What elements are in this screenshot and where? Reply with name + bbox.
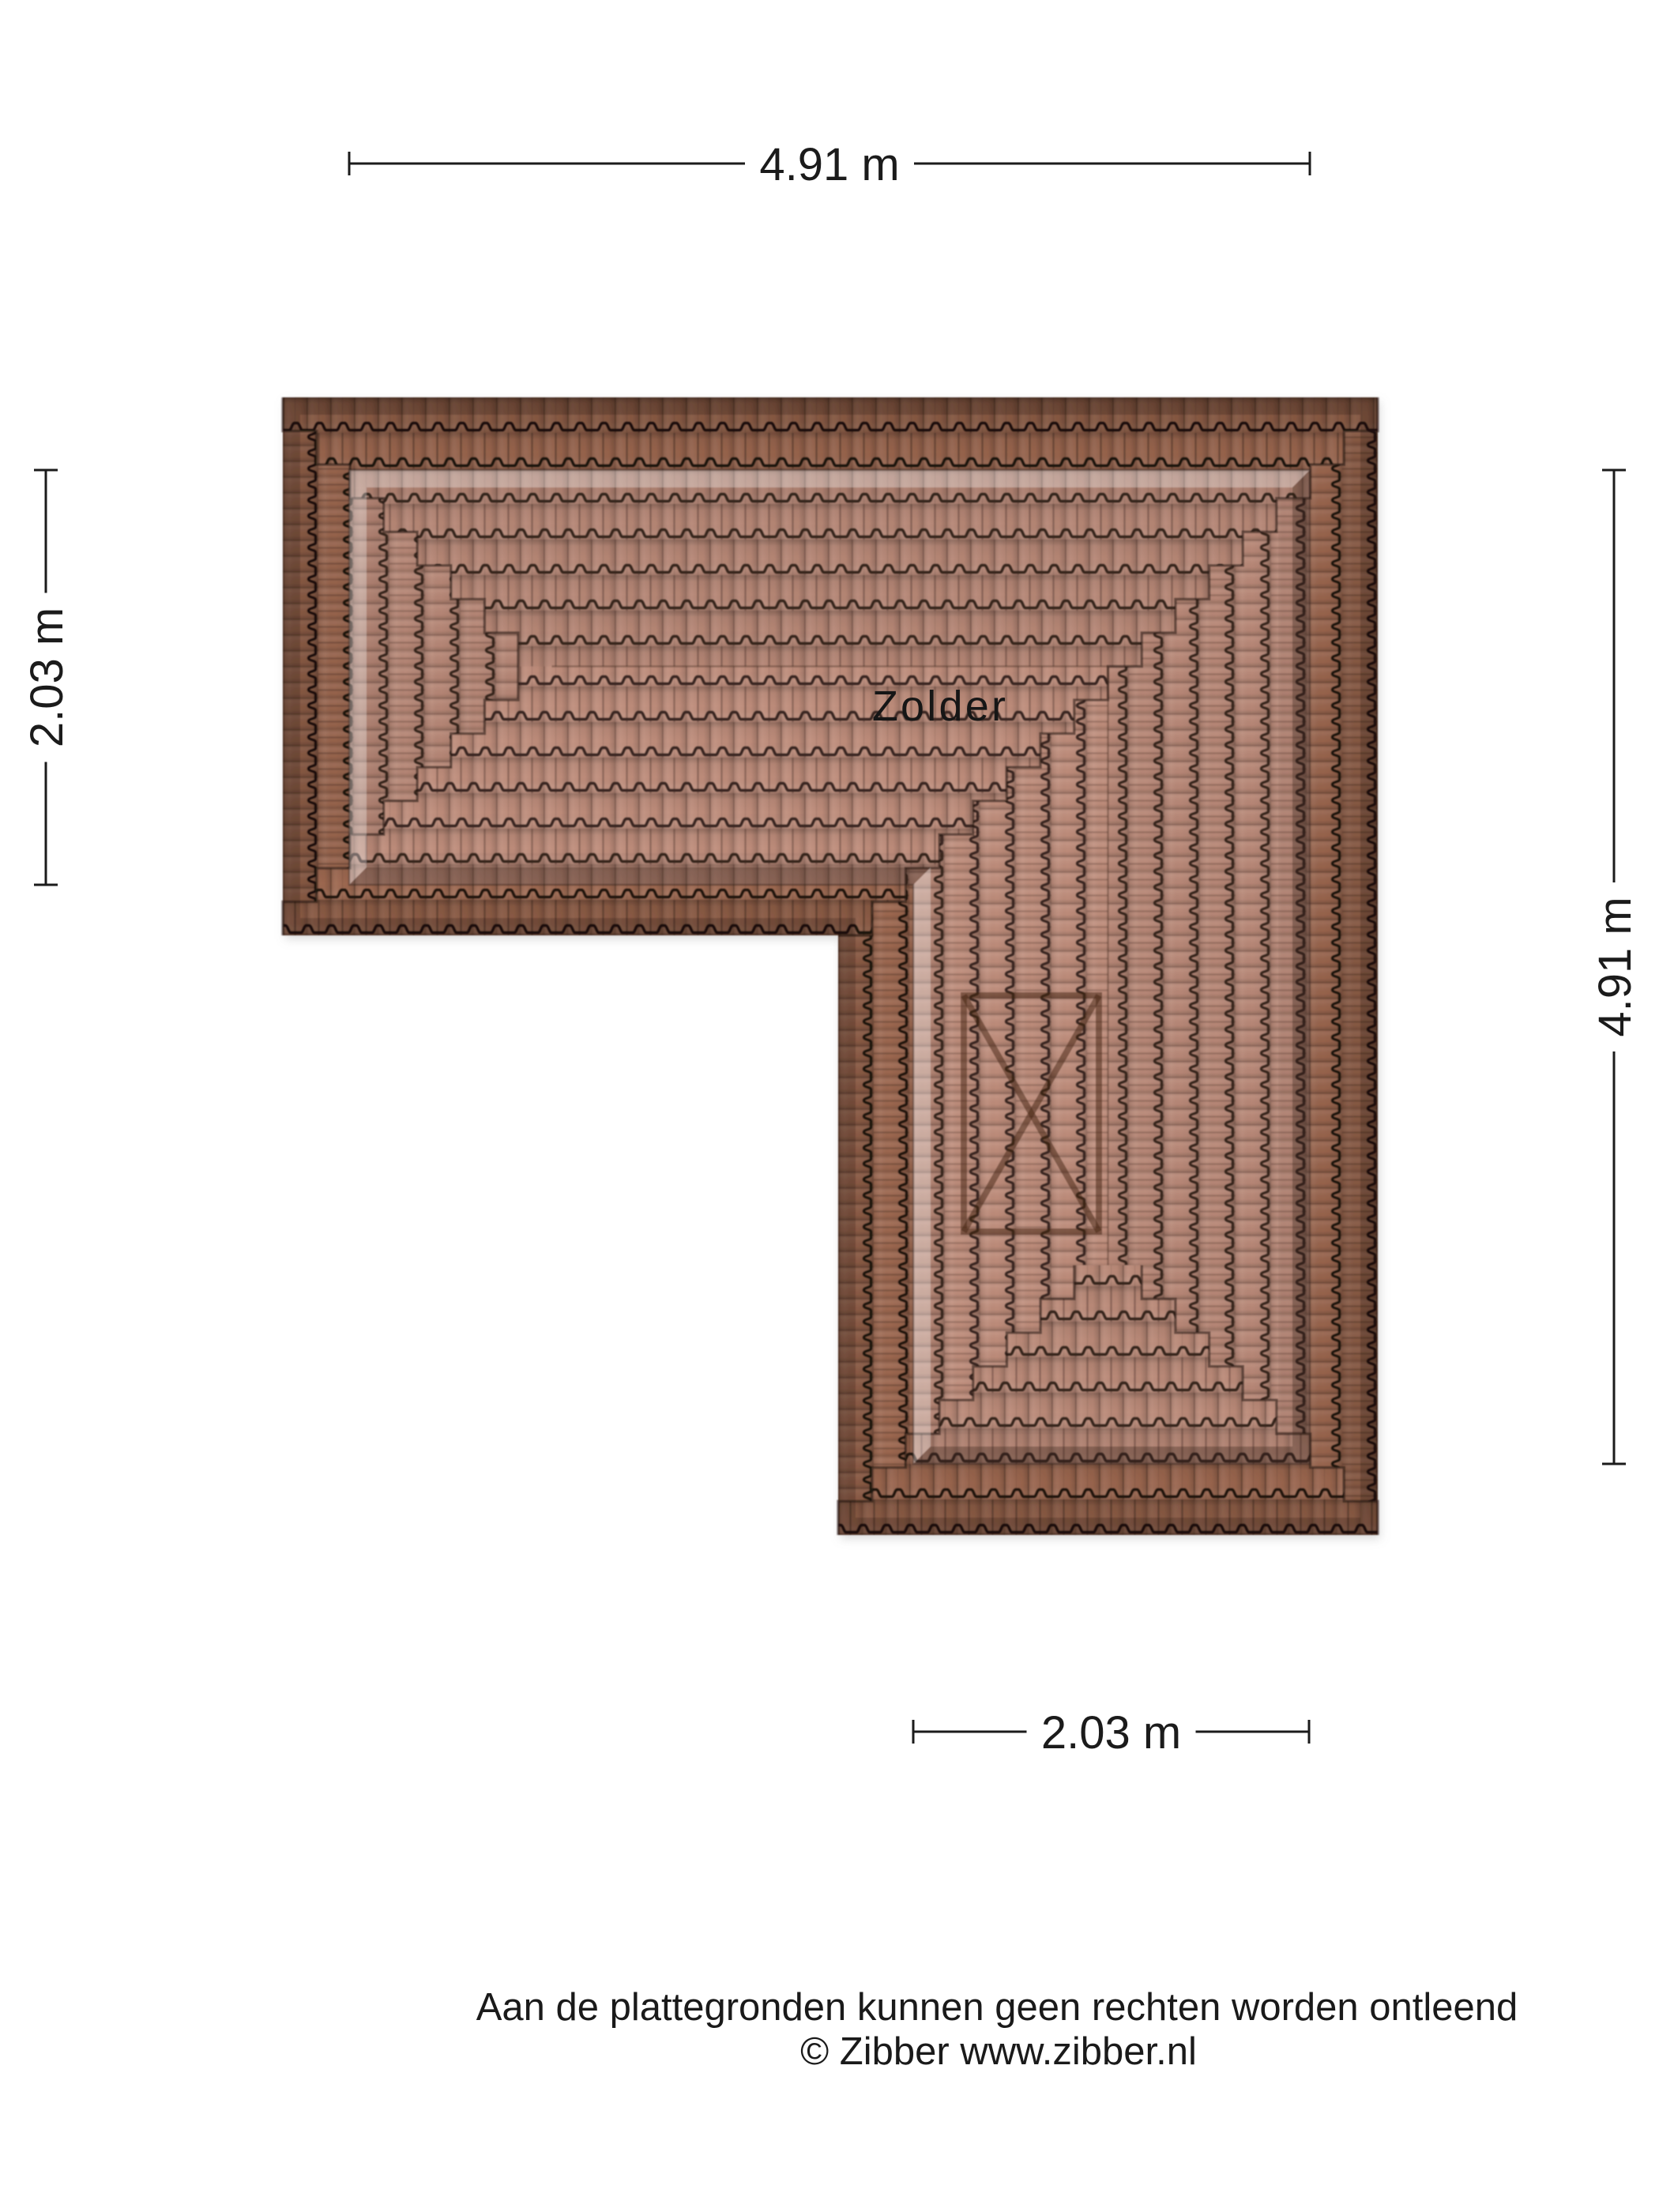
svg-text:2.03 m: 2.03 m	[1041, 1707, 1181, 1759]
svg-text:4.91 m: 4.91 m	[1589, 897, 1641, 1036]
svg-text:4.91 m: 4.91 m	[759, 139, 899, 190]
svg-text:© Zibber www.zibber.nl: © Zibber www.zibber.nl	[800, 2030, 1197, 2073]
svg-text:Zolder: Zolder	[872, 683, 1008, 730]
svg-text:2.03 m: 2.03 m	[21, 608, 73, 747]
svg-text:Aan de plattegronden kunnen ge: Aan de plattegronden kunnen geen rechten…	[476, 1986, 1518, 2029]
